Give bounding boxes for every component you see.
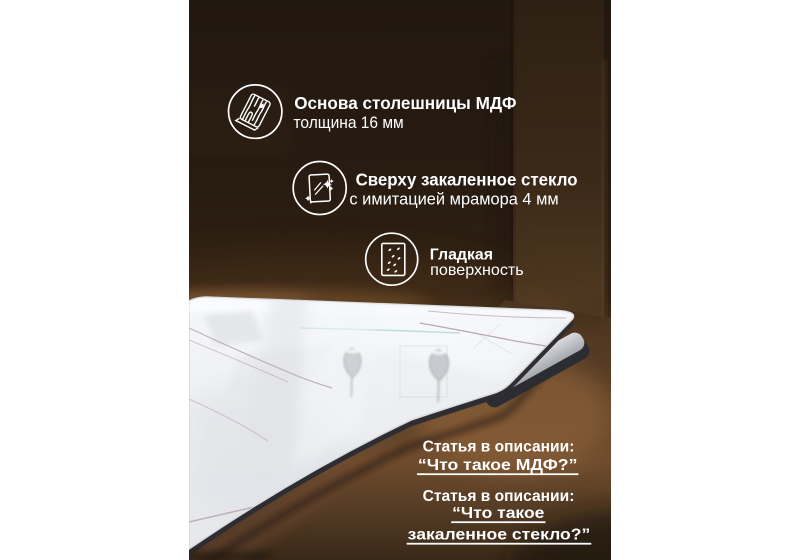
svg-text:поверхность: поверхность bbox=[430, 262, 524, 279]
svg-text:толщина 16 мм: толщина 16 мм bbox=[294, 113, 404, 132]
svg-text:“Что такое: “Что такое bbox=[452, 505, 544, 522]
svg-text:закаленное стекло?”: закаленное стекло?” bbox=[408, 527, 591, 544]
svg-text:Основа столешницы МДФ: Основа столешницы МДФ bbox=[294, 93, 516, 113]
svg-text:с имитацией мрамора 4 мм: с имитацией мрамора 4 мм bbox=[349, 190, 558, 209]
svg-text:Гладкая: Гладкая bbox=[430, 246, 493, 263]
svg-text:Статья в описании:: Статья в описании: bbox=[423, 488, 575, 505]
svg-text:“Что такое МДФ?”: “Что такое МДФ?” bbox=[418, 457, 578, 474]
svg-text:Статья в описании:: Статья в описании: bbox=[423, 439, 575, 456]
svg-text:Сверху закаленное стекло: Сверху закаленное стекло bbox=[356, 170, 578, 190]
